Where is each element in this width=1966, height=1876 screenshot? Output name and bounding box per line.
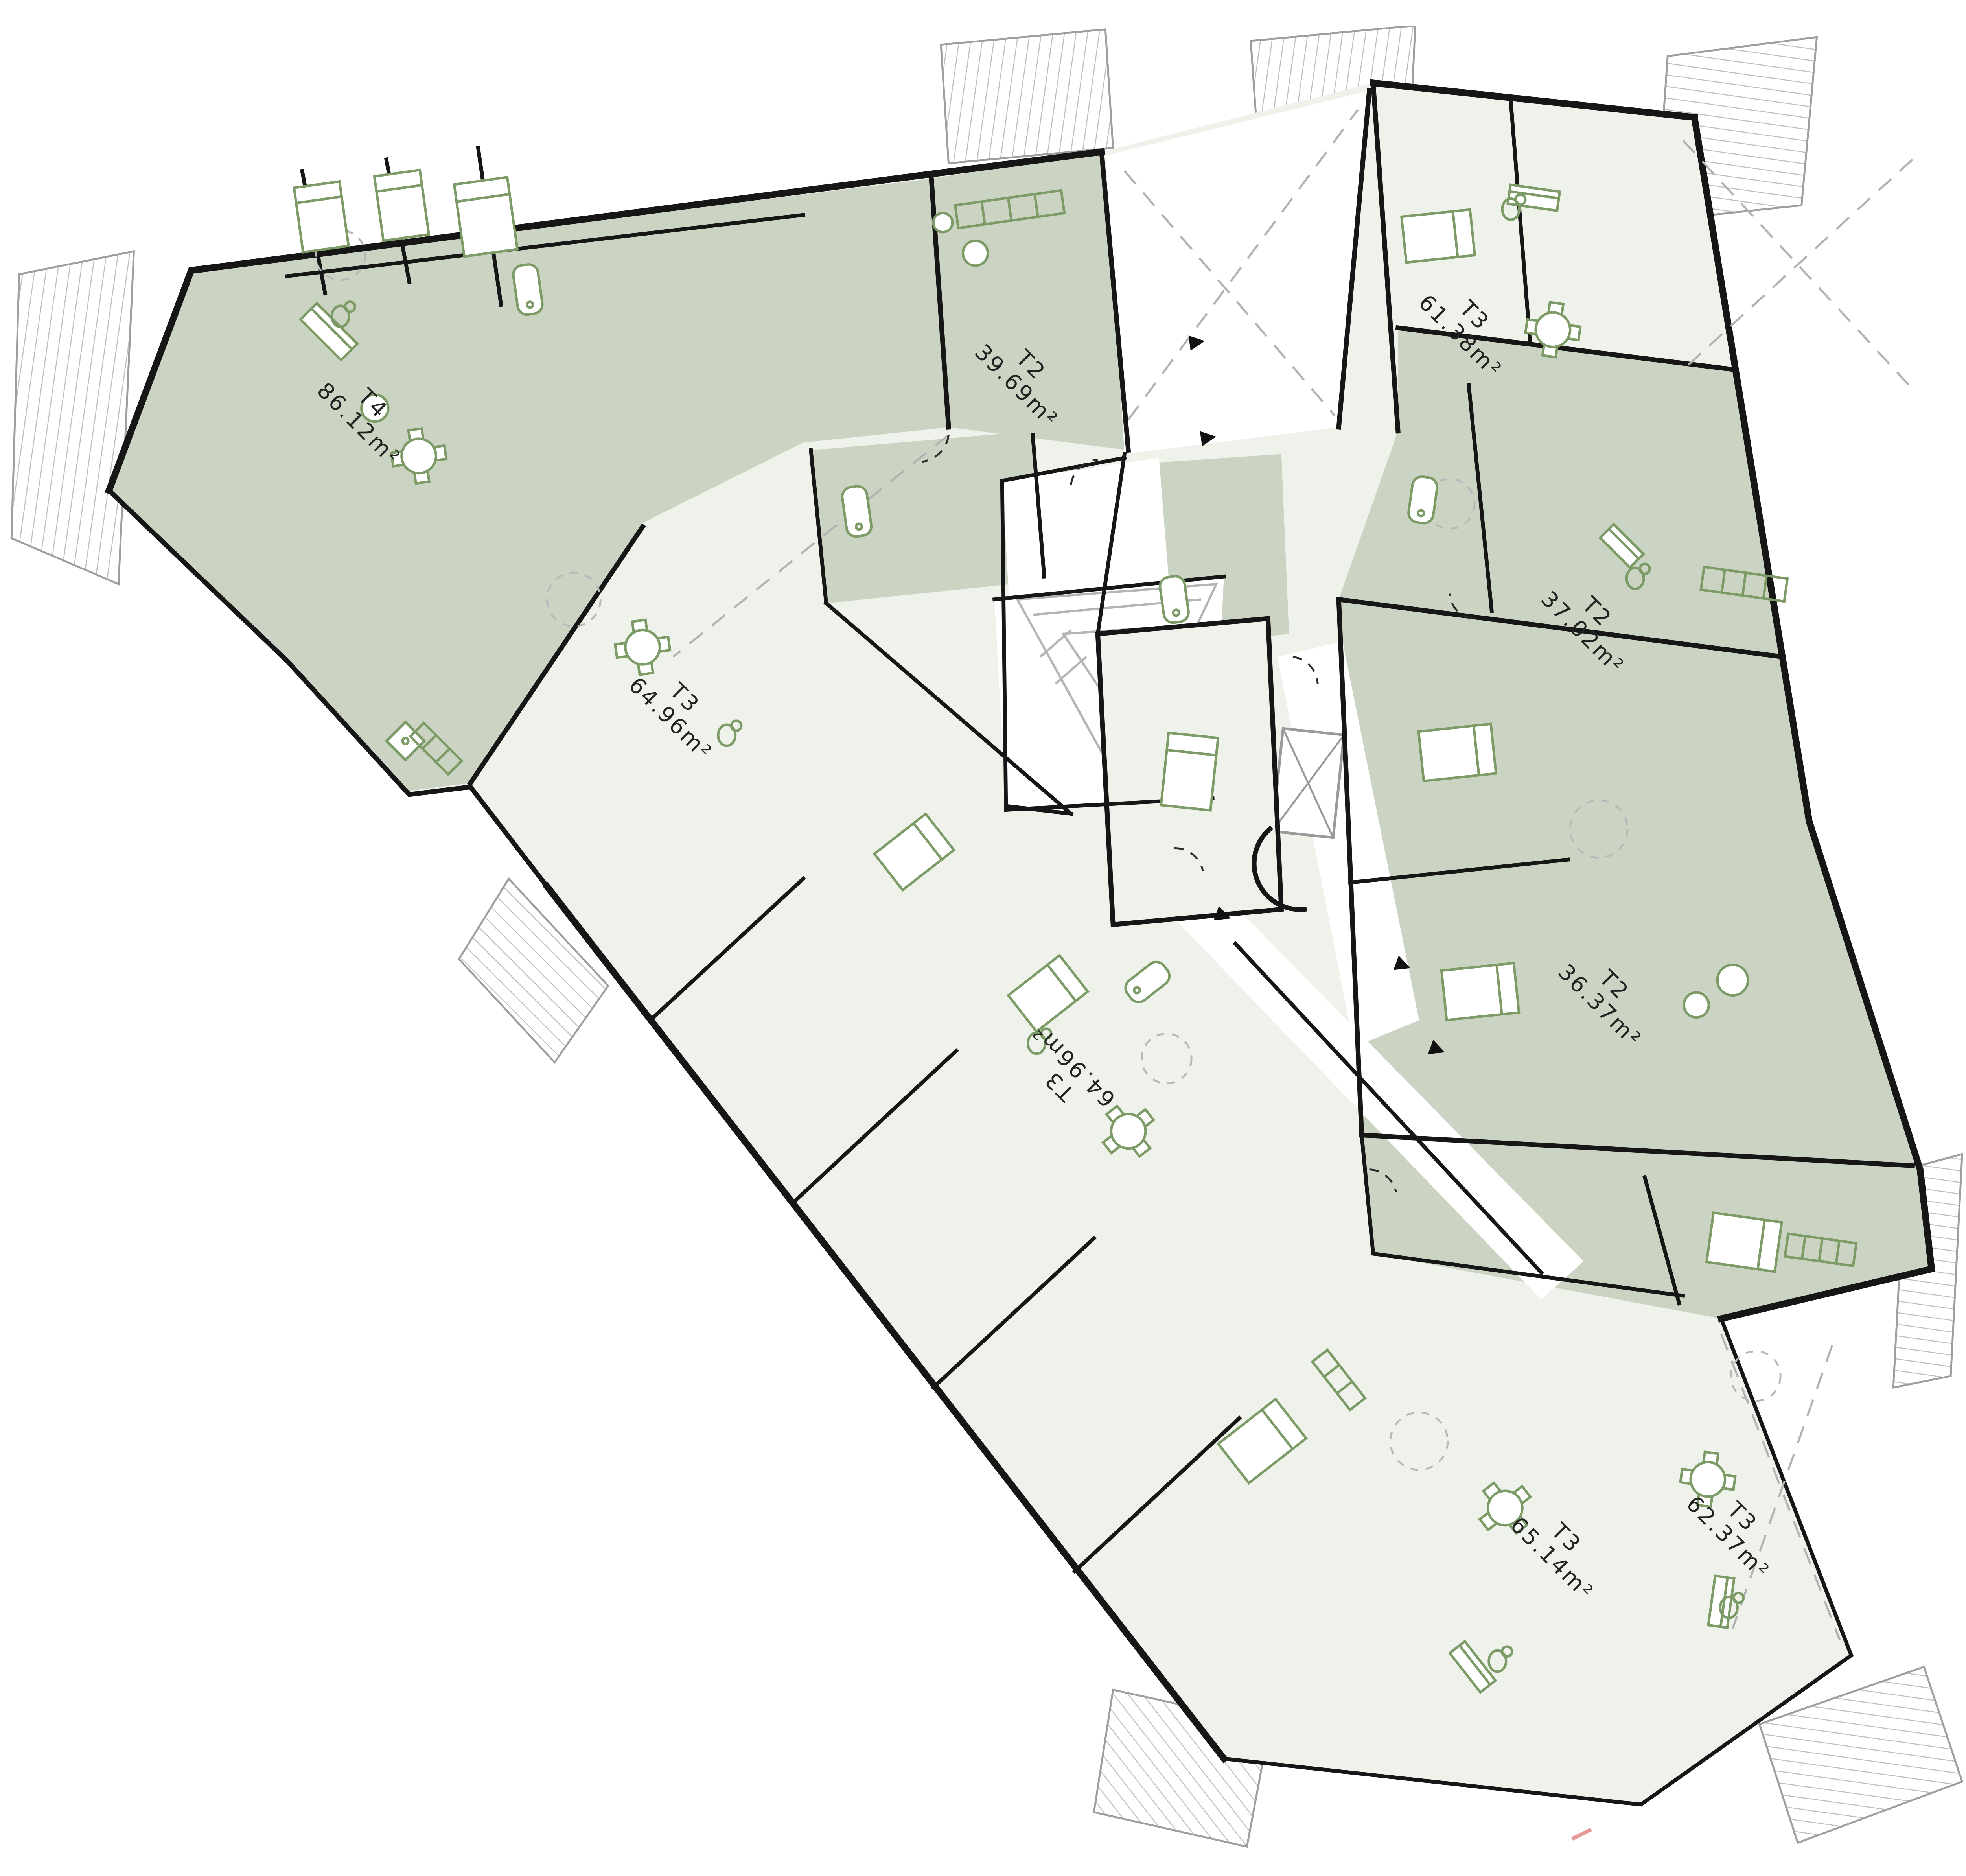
bed bbox=[454, 177, 517, 256]
bed bbox=[1161, 733, 1218, 810]
floor-plan-canvas: T4 86.12m² T2 39.69m² T3 61.38m² T2 37.0… bbox=[0, 0, 1966, 1876]
bed bbox=[1419, 724, 1496, 781]
side-table bbox=[963, 241, 988, 265]
elevator-icon bbox=[1272, 728, 1344, 837]
side-table bbox=[1717, 965, 1748, 995]
bathtub bbox=[841, 485, 873, 538]
floor-plan-drawing: T4 86.12m² T2 39.69m² T3 61.38m² T2 37.0… bbox=[0, 26, 1966, 1850]
balcony-terrace bbox=[941, 29, 1113, 163]
bathtub bbox=[512, 263, 543, 316]
balcony-terrace bbox=[11, 251, 134, 584]
side-table bbox=[1684, 993, 1709, 1017]
bathtub bbox=[1159, 575, 1190, 624]
red-marker bbox=[1572, 1830, 1591, 1839]
bed bbox=[1441, 963, 1519, 1020]
bathtub bbox=[1407, 475, 1438, 524]
bed bbox=[294, 181, 349, 252]
bed bbox=[1706, 1213, 1782, 1272]
side-table bbox=[933, 213, 953, 232]
bed bbox=[1401, 210, 1474, 262]
bed bbox=[374, 170, 429, 241]
